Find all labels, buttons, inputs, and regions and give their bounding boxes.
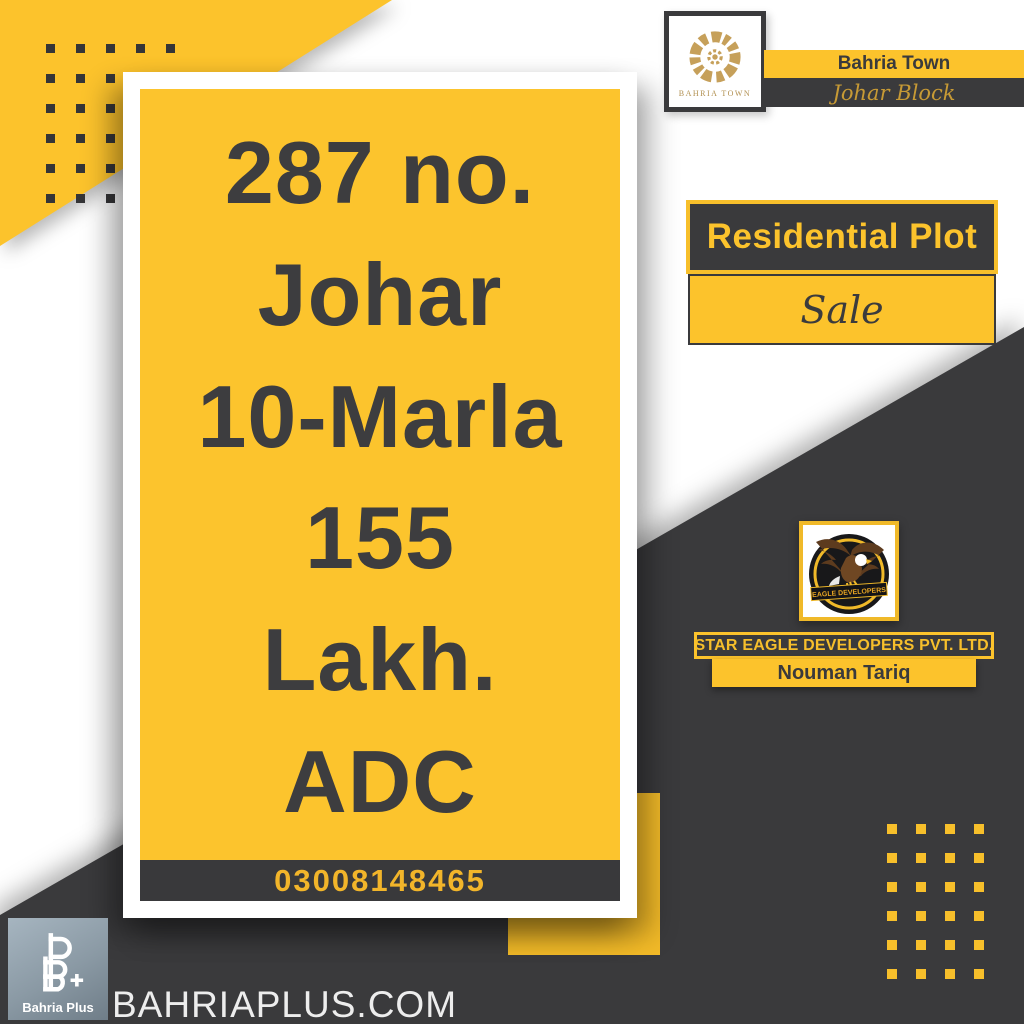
eagle-logo-icon: EAGLE DEVELOPERS bbox=[804, 526, 894, 616]
poster: 287 no. Johar 10-Marla 155 Lakh. ADC 030… bbox=[0, 0, 1024, 1024]
price-unit: Lakh. bbox=[263, 616, 498, 704]
bahria-town-logo-caption: BAHRIA TOWN bbox=[679, 89, 751, 98]
phone-number: 03008148465 bbox=[274, 863, 486, 899]
brand-title: Bahria Town bbox=[764, 50, 1024, 78]
brand-subtitle: Johar Block bbox=[764, 78, 1024, 107]
bahria-plus-logo-box: Bahria Plus bbox=[8, 918, 108, 1020]
bahria-plus-label: Bahria Plus bbox=[22, 1000, 94, 1015]
price-note: ADC bbox=[283, 738, 477, 826]
phone-bar: 03008148465 bbox=[140, 860, 620, 901]
plot-size: 10-Marla bbox=[197, 373, 562, 461]
price-value: 155 bbox=[305, 494, 455, 582]
category-label: Residential Plot bbox=[707, 217, 978, 257]
bahria-town-logo-box: BAHRIA TOWN bbox=[664, 11, 766, 112]
company-bar: STAR EAGLE DEVELOPERS PVT. LTD. bbox=[694, 632, 994, 659]
company-name: STAR EAGLE DEVELOPERS PVT. LTD. bbox=[695, 637, 994, 655]
eagle-logo-box: EAGLE DEVELOPERS bbox=[799, 521, 899, 621]
plot-number: 287 no. bbox=[225, 129, 535, 217]
category-box: Residential Plot bbox=[686, 200, 998, 274]
agent-name: Nouman Tariq bbox=[778, 662, 911, 685]
block-name: Johar bbox=[258, 251, 503, 339]
brand-header-bars: Bahria Town Johar Block bbox=[764, 50, 1024, 107]
listing-text: 287 no. Johar 10-Marla 155 Lakh. ADC bbox=[140, 89, 620, 860]
agent-bar: Nouman Tariq bbox=[712, 659, 976, 687]
bahria-town-emblem-icon bbox=[684, 26, 746, 88]
website-text: BAHRIAPLUS.COM bbox=[112, 986, 457, 1023]
listing-card: 287 no. Johar 10-Marla 155 Lakh. ADC 030… bbox=[123, 72, 637, 918]
sale-box: Sale bbox=[688, 274, 996, 345]
sale-label: Sale bbox=[800, 288, 883, 332]
dot-grid-bottom-right bbox=[887, 824, 984, 979]
bahria-plus-monogram-icon bbox=[26, 930, 90, 1000]
